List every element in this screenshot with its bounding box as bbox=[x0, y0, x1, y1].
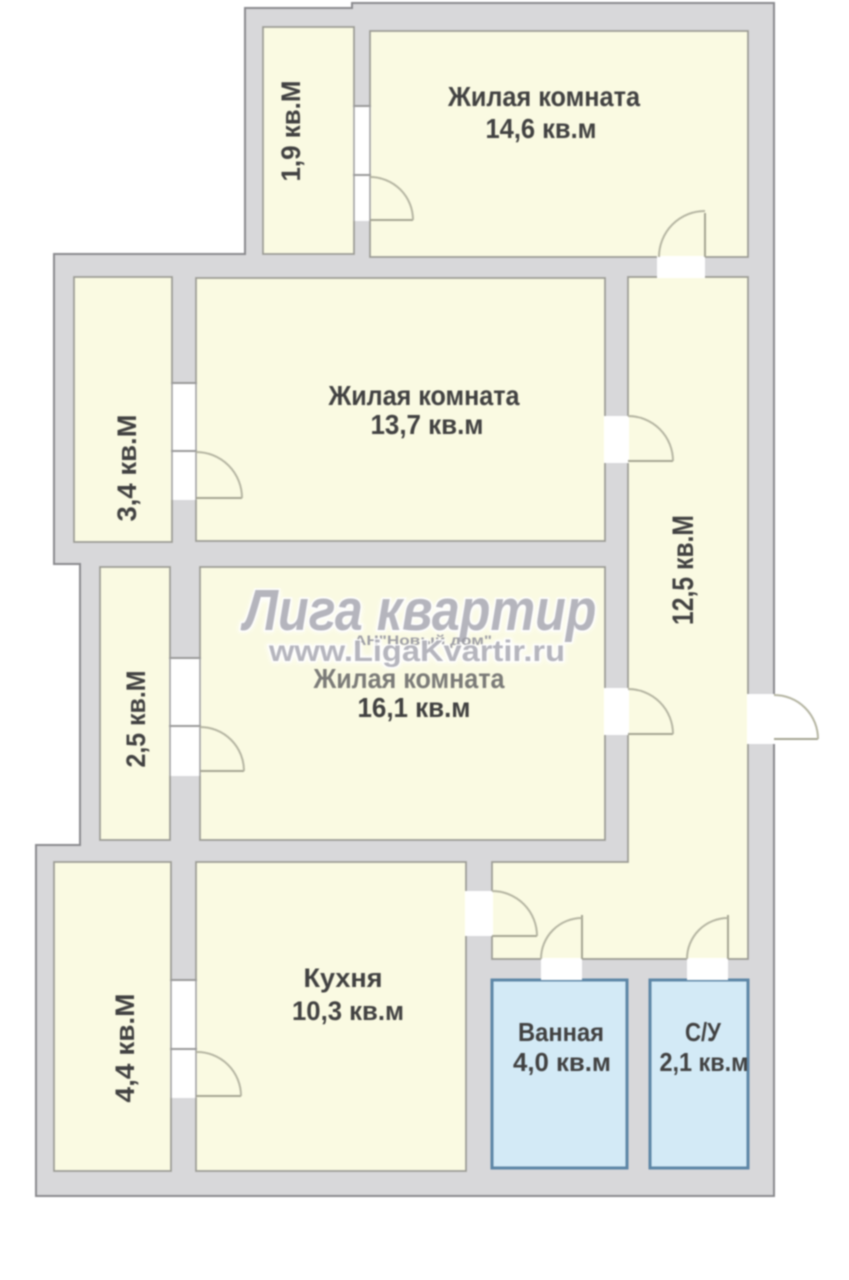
svg-text:Кухня: Кухня bbox=[304, 963, 383, 993]
svg-text:13,7 кв.м: 13,7 кв.м bbox=[371, 409, 484, 440]
svg-text:4,4 кв.М: 4,4 кв.М bbox=[110, 994, 140, 1103]
svg-text:2,1 кв.м: 2,1 кв.м bbox=[660, 1047, 749, 1077]
svg-text:Ванная: Ванная bbox=[518, 1017, 604, 1047]
svg-text:4,0 кв.м: 4,0 кв.м bbox=[513, 1047, 611, 1077]
svg-text:10,3 кв.м: 10,3 кв.м bbox=[292, 996, 404, 1026]
svg-text:1,9 кв.М: 1,9 кв.М bbox=[276, 81, 306, 182]
svg-text:С/У: С/У bbox=[685, 1017, 722, 1047]
svg-text:3,4 кв.М: 3,4 кв.М bbox=[112, 415, 142, 522]
svg-text:14,6 кв.м: 14,6 кв.м bbox=[486, 113, 597, 144]
svg-text:12,5 кв.М: 12,5 кв.М bbox=[667, 515, 700, 625]
svg-text:Жилая комната: Жилая комната bbox=[328, 380, 520, 411]
svg-text:www.LigaKvartir.ru: www.LigaKvartir.ru bbox=[268, 635, 565, 668]
svg-text:16,1 кв.м: 16,1 кв.м bbox=[358, 692, 471, 723]
svg-text:2,5 кв.М: 2,5 кв.М bbox=[121, 671, 151, 768]
svg-text:Жилая комната: Жилая комната bbox=[447, 81, 640, 112]
